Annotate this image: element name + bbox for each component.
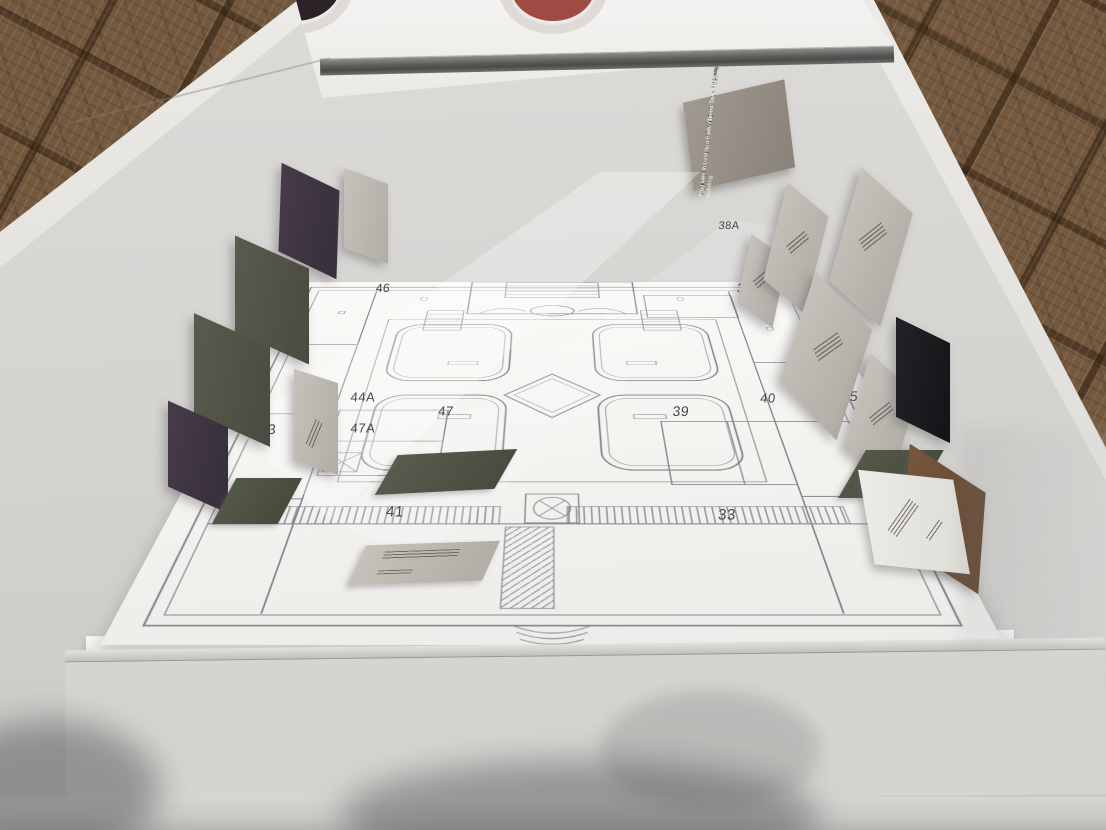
exhibit-photo: Leg med farverne fra Vilhelm Dahlerups b… <box>0 0 1106 830</box>
label-card-room-33 <box>858 470 970 575</box>
room-label-44A: 44A <box>350 390 376 405</box>
label-card-left <box>294 369 338 475</box>
label-card-blank <box>344 168 388 264</box>
room-label-41: 41 <box>385 504 404 521</box>
room-label-46: 46 <box>375 281 391 295</box>
room-label-47: 47 <box>438 404 455 419</box>
room-label-47A: 47A <box>350 421 376 436</box>
room-label-40: 40 <box>760 391 777 406</box>
pigment-dish-right <box>498 0 608 34</box>
pigment-red <box>511 0 595 21</box>
room-label-38A: 38A <box>718 220 740 232</box>
room-label-33: 33 <box>717 507 736 524</box>
swatch-tray <box>65 638 1106 807</box>
label-card-room-41 <box>348 541 500 586</box>
tray-compartments <box>65 650 1106 807</box>
table-front-panel <box>0 797 1106 830</box>
room-label-39: 39 <box>672 403 690 419</box>
